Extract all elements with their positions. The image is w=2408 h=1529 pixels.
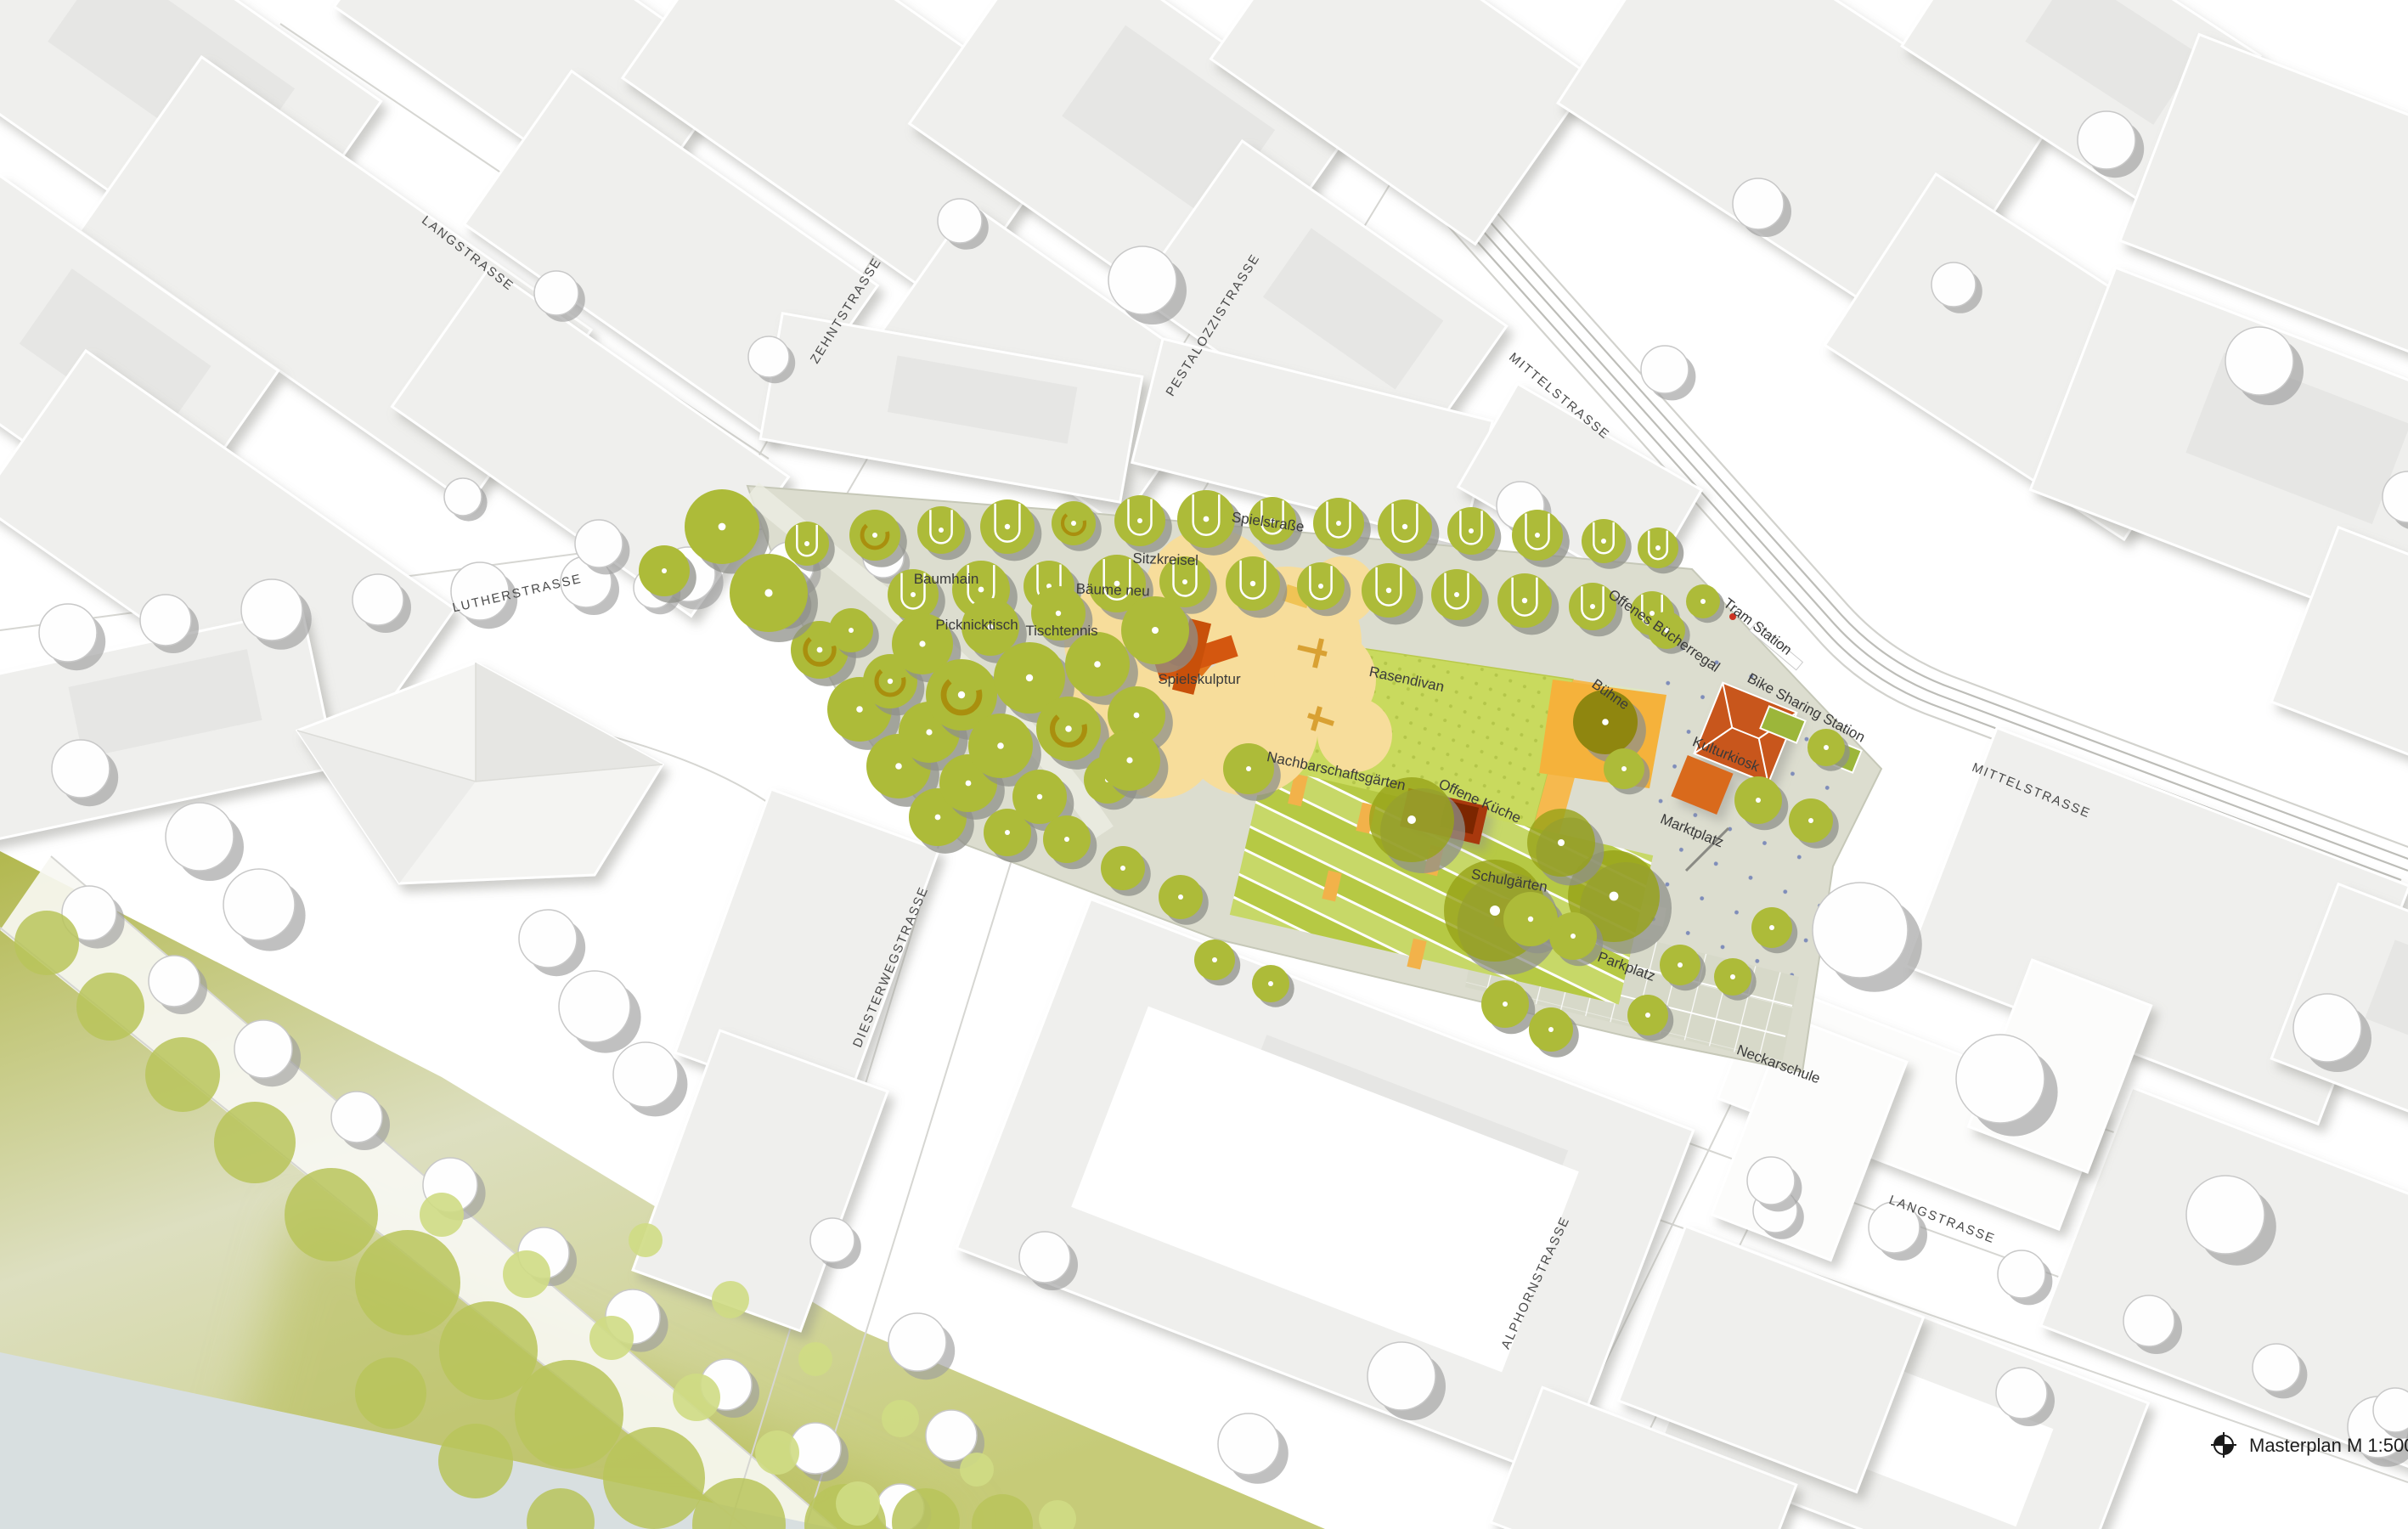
tree-center: [1769, 925, 1774, 930]
bank-tree: [836, 1481, 880, 1526]
tree-crown: [1931, 262, 1976, 307]
tree-crown: [352, 574, 403, 625]
bank-tree: [589, 1316, 634, 1360]
tree-crown: [149, 956, 200, 1007]
tree-crown: [1813, 883, 1908, 978]
bank-tree: [712, 1281, 749, 1318]
tree-crown: [938, 199, 982, 243]
site-label-sitzkreisel: Sitzkreisel: [1132, 550, 1198, 569]
tree-crown: [2293, 994, 2361, 1062]
tree-center: [1386, 588, 1391, 593]
tree-crown: [1733, 178, 1784, 229]
tree-center: [1037, 794, 1042, 799]
tree-center: [1137, 518, 1142, 523]
tree-crown: [223, 869, 295, 940]
tree-center: [911, 592, 916, 597]
tree-crown: [1998, 1250, 2045, 1298]
tree-center: [1678, 962, 1683, 968]
bank-tree: [285, 1168, 378, 1261]
tree-crown: [1108, 246, 1176, 314]
tree-center: [817, 647, 823, 653]
tree-center: [1071, 521, 1076, 526]
bank-tree: [145, 1037, 220, 1112]
bank-tree: [214, 1102, 296, 1183]
tree-center: [1824, 745, 1829, 750]
tree-center: [872, 533, 877, 538]
tree-center: [1590, 604, 1595, 609]
site-label-picknicktisch: Picknicktisch: [935, 617, 1018, 633]
tree-center: [1005, 524, 1010, 529]
bank-tree: [798, 1342, 832, 1376]
tree-center: [1621, 766, 1627, 771]
tree-crown: [519, 910, 577, 968]
bank-tree: [515, 1360, 623, 1469]
bank-tree: [420, 1193, 464, 1237]
tree-center: [719, 523, 726, 531]
tree-crown: [2253, 1344, 2300, 1391]
bank-tree: [438, 1424, 513, 1498]
bank-tree: [603, 1427, 705, 1529]
tree-center: [1026, 674, 1033, 681]
tree-crown: [575, 520, 623, 567]
tree-center: [1152, 627, 1159, 634]
tree-crown: [39, 604, 97, 662]
legend-label: Masterplan M 1:500: [2249, 1435, 2408, 1456]
site-label-tischtennis: Tischtennis: [1025, 623, 1097, 639]
tree-crown: [241, 579, 302, 640]
tree-center: [1094, 661, 1101, 668]
tree-crown: [1641, 346, 1689, 393]
tree-center: [1756, 798, 1761, 803]
tree-center: [1655, 545, 1661, 550]
tree-center: [997, 742, 1004, 749]
tree-center: [1064, 837, 1069, 842]
site-label-baeume-neu: Bäume neu: [1075, 580, 1150, 599]
tree-crown: [613, 1042, 678, 1107]
tree-crown: [888, 1313, 946, 1371]
tree-center: [1212, 957, 1217, 962]
tree-center: [919, 640, 925, 646]
tree-center: [1318, 584, 1323, 589]
tree-center: [1548, 1027, 1554, 1032]
masterplan-map: LANGSTRASSE ZEHNTSTRASSE PESTALOZZISTRAS…: [0, 0, 2408, 1529]
tree-center: [1490, 906, 1500, 916]
tree-center: [1407, 815, 1416, 824]
tree-center: [1204, 516, 1210, 522]
tree-center: [888, 679, 893, 684]
tree-crown: [1996, 1368, 2047, 1419]
tree-crown: [444, 478, 482, 516]
tree-center: [1602, 719, 1609, 725]
bank-tree: [14, 911, 79, 975]
tree-center: [1700, 599, 1706, 604]
tree-center: [935, 815, 941, 821]
tree-crown: [2078, 111, 2135, 169]
bank-tree: [629, 1223, 663, 1257]
tree-center: [1250, 581, 1255, 586]
bank-tree: [882, 1400, 919, 1437]
tree-center: [966, 781, 972, 787]
bank-tree: [503, 1250, 550, 1298]
tree-crown: [2225, 327, 2293, 395]
tree-center: [978, 587, 984, 593]
tree-center: [1535, 533, 1540, 538]
bank-tree: [673, 1374, 720, 1421]
tree-crown: [234, 1020, 292, 1078]
bank-tree: [76, 973, 144, 1041]
tree-center: [1454, 592, 1459, 597]
tree-center: [1522, 598, 1527, 603]
tree-crown: [2123, 1295, 2174, 1346]
tree-crown: [1019, 1232, 1070, 1283]
bank-tree: [355, 1230, 460, 1335]
tree-crown: [926, 1410, 977, 1461]
tree-center: [1528, 917, 1533, 922]
tree-crown: [559, 971, 630, 1042]
tree-center: [1730, 974, 1735, 979]
tree-center: [1005, 830, 1010, 835]
tree-center: [1469, 528, 1474, 533]
tree-crown: [52, 740, 110, 798]
tree-crown: [1956, 1035, 2044, 1123]
tree-crown: [331, 1092, 382, 1143]
tree-crown: [810, 1218, 854, 1262]
tree-center: [958, 691, 965, 698]
tree-center: [1178, 894, 1183, 900]
tree-crown: [166, 803, 234, 871]
tree-center: [1268, 981, 1273, 986]
tree-crown: [2186, 1176, 2264, 1254]
tree-center: [1126, 757, 1132, 763]
tree-center: [1246, 766, 1251, 771]
tree-center: [1503, 1001, 1508, 1007]
tree-crown: [1368, 1342, 1435, 1410]
tree-center: [1056, 611, 1061, 616]
tree-center: [1065, 725, 1072, 732]
tree-crown: [1218, 1413, 1279, 1475]
bank-tree: [960, 1453, 994, 1487]
tree-center: [939, 528, 944, 533]
tree-center: [1336, 521, 1341, 526]
tree-crown: [748, 336, 789, 377]
tree-center: [662, 568, 667, 573]
tree-center: [1182, 579, 1187, 584]
tree-crown: [534, 271, 578, 315]
tree-center: [895, 763, 902, 770]
tree-crown: [1747, 1157, 1795, 1205]
tree-center: [804, 541, 809, 546]
tree-center: [1120, 866, 1125, 871]
tree-center: [1645, 1013, 1650, 1018]
tree-center: [1571, 934, 1576, 939]
bank-tree: [439, 1301, 538, 1400]
tree-center: [1808, 818, 1813, 823]
bank-tree: [355, 1357, 426, 1429]
tree-center: [926, 729, 932, 735]
tree-center: [1134, 713, 1140, 719]
site-label-spielskulptur: Spielskulptur: [1158, 671, 1241, 687]
tree-center: [1402, 524, 1407, 529]
tree-center: [1558, 839, 1565, 846]
tree-crown: [140, 595, 191, 646]
tree-center: [856, 706, 863, 713]
tree-center: [764, 589, 772, 596]
tree-center: [1610, 892, 1619, 901]
bank-tree: [755, 1430, 799, 1475]
tree-center: [1601, 539, 1606, 544]
tree-center: [849, 628, 854, 633]
site-label-baumhain: Baumhain: [914, 571, 979, 587]
